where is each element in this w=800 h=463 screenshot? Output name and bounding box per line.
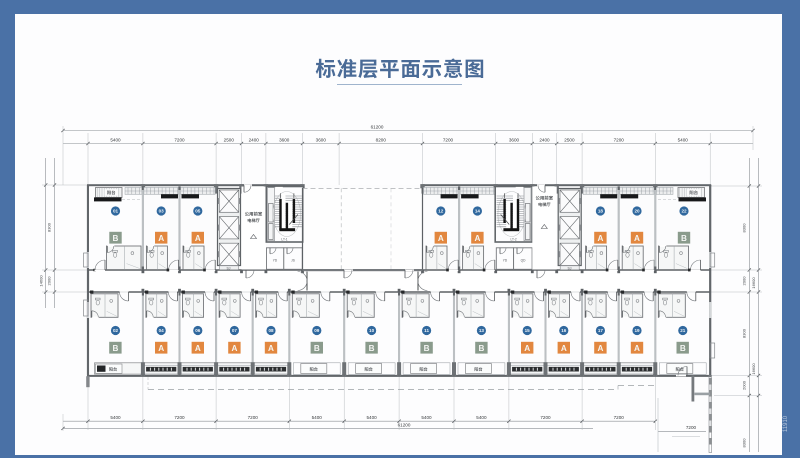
svg-text:61200: 61200 [371, 125, 384, 130]
svg-text:LT-2: LT-2 [511, 237, 517, 241]
svg-text:SJ: SJ [568, 266, 572, 270]
svg-text:B: B [113, 344, 119, 353]
svg-text:5400: 5400 [312, 415, 323, 420]
svg-text:19: 19 [634, 328, 640, 333]
svg-text:A: A [524, 344, 530, 353]
svg-text:15: 15 [525, 328, 531, 333]
svg-text:7200: 7200 [248, 415, 259, 420]
svg-text:02: 02 [113, 328, 119, 333]
svg-text:YD: YD [273, 259, 278, 263]
svg-text:B: B [369, 344, 375, 353]
svg-text:14600: 14600 [39, 275, 44, 287]
svg-text:SJ: SJ [227, 266, 231, 270]
svg-text:07: 07 [232, 328, 238, 333]
svg-text:16600: 16600 [751, 363, 756, 375]
svg-text:B: B [113, 234, 119, 243]
svg-text:05: 05 [195, 209, 201, 214]
svg-text:7200: 7200 [174, 415, 185, 420]
svg-text:A: A [195, 234, 201, 243]
svg-text:A: A [438, 234, 444, 243]
svg-text:08: 08 [268, 328, 274, 333]
svg-text:2500: 2500 [564, 138, 575, 143]
svg-text:5400: 5400 [421, 415, 432, 420]
svg-text:A: A [597, 344, 603, 353]
svg-text:20: 20 [634, 209, 640, 214]
svg-text:3600: 3600 [279, 138, 290, 143]
svg-text:03: 03 [159, 209, 165, 214]
svg-text:B: B [681, 234, 687, 243]
svg-text:18: 18 [598, 209, 604, 214]
svg-text:5400: 5400 [110, 138, 121, 143]
svg-text:2400: 2400 [249, 138, 260, 143]
svg-text:8300: 8300 [742, 328, 747, 338]
svg-text:B: B [478, 344, 484, 353]
svg-text:5400: 5400 [110, 415, 121, 420]
svg-text:A: A [158, 234, 164, 243]
svg-text:14: 14 [475, 209, 481, 214]
svg-text:A: A [231, 344, 237, 353]
svg-text:11910: 11910 [783, 415, 789, 432]
svg-text:8300: 8300 [742, 438, 747, 448]
svg-text:01: 01 [113, 209, 119, 214]
svg-text:8200: 8200 [376, 138, 387, 143]
svg-text:21: 21 [680, 328, 686, 333]
svg-text:3600: 3600 [509, 138, 520, 143]
svg-text:2400: 2400 [539, 138, 550, 143]
svg-text:06: 06 [195, 328, 201, 333]
svg-text:7200: 7200 [174, 138, 185, 143]
svg-text:2000: 2000 [742, 276, 747, 286]
svg-text:A: A [474, 234, 480, 243]
svg-text:A: A [597, 234, 603, 243]
svg-text:YD: YD [503, 259, 508, 263]
svg-text:A: A [634, 344, 640, 353]
svg-text:7200: 7200 [686, 425, 697, 430]
svg-text:JS: JS [291, 259, 295, 263]
svg-text:22: 22 [681, 209, 687, 214]
svg-text:5400: 5400 [366, 415, 377, 420]
svg-text:B: B [424, 344, 430, 353]
svg-text:13: 13 [479, 328, 485, 333]
svg-text:B: B [314, 344, 320, 353]
svg-text:8300: 8300 [742, 223, 747, 233]
svg-text:7200: 7200 [614, 415, 625, 420]
svg-text:A: A [268, 344, 274, 353]
svg-text:A: A [195, 344, 201, 353]
svg-text:10: 10 [369, 328, 375, 333]
svg-text:3600: 3600 [316, 138, 327, 143]
svg-text:11: 11 [424, 328, 429, 333]
svg-text:16: 16 [561, 328, 567, 333]
svg-text:09: 09 [314, 328, 320, 333]
svg-text:B: B [680, 344, 686, 353]
svg-text:5400: 5400 [678, 138, 689, 143]
svg-text:04: 04 [159, 328, 165, 333]
svg-text:2000: 2000 [47, 276, 52, 286]
svg-text:12: 12 [438, 209, 444, 214]
svg-text:17: 17 [598, 328, 604, 333]
svg-text:A: A [158, 344, 164, 353]
svg-text:7200: 7200 [540, 415, 551, 420]
svg-text:2500: 2500 [224, 138, 235, 143]
svg-text:2000: 2000 [742, 380, 747, 390]
svg-text:7200: 7200 [443, 138, 454, 143]
svg-text:LT-1: LT-1 [281, 237, 287, 241]
svg-text:A: A [634, 234, 640, 243]
svg-text:7200: 7200 [614, 138, 625, 143]
svg-text:16600: 16600 [751, 277, 756, 289]
svg-text:8300: 8300 [47, 222, 52, 232]
svg-text:5400: 5400 [476, 415, 487, 420]
svg-text:61200: 61200 [398, 423, 411, 428]
svg-text:QD: QD [521, 259, 526, 263]
svg-text:A: A [561, 344, 567, 353]
